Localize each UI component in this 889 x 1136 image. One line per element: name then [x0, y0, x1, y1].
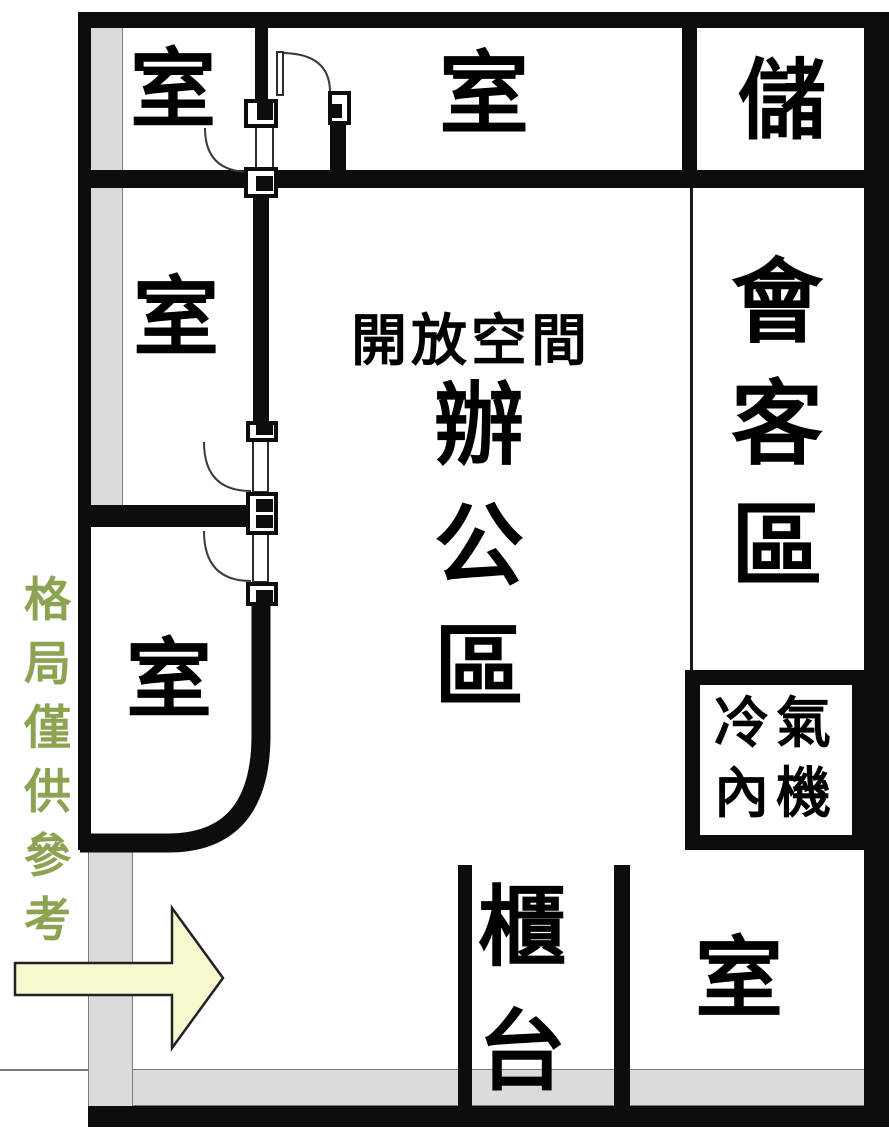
ac-unit-label: 冷氣 內機	[700, 688, 852, 828]
watermark-char: 考	[24, 897, 71, 944]
door-leaf-top	[276, 51, 284, 96]
watermark-char: 格	[24, 577, 71, 624]
open-office-subtitle: 辦 公 區	[434, 381, 524, 744]
watermark-char: 僅	[24, 705, 71, 752]
counter-label: 櫃 台	[478, 884, 566, 1132]
room-label-storage: 儲	[738, 57, 826, 145]
watermark-char: 供	[24, 769, 71, 816]
counter-label-char: 櫃	[478, 884, 566, 972]
open-office-subtitle-char: 區	[434, 623, 524, 713]
room-label-mid-left: 室	[133, 275, 219, 361]
reception-label-char: 客	[731, 379, 823, 471]
watermark-char: 局	[24, 641, 71, 688]
reception-label-char: 會	[731, 257, 823, 349]
open-office-subtitle-char: 辦	[434, 381, 524, 471]
reception-label: 會 客 區	[731, 257, 823, 623]
watermark-char: 參	[24, 833, 71, 880]
door-jamb	[246, 582, 278, 606]
ac-unit-label-line: 內機	[700, 758, 852, 828]
room-label-lower-left: 室	[126, 637, 212, 723]
door-jamb	[244, 167, 278, 198]
door-jamb	[246, 421, 278, 442]
door-jamb	[328, 91, 351, 125]
door-leaf-lower-left	[252, 530, 269, 583]
door-jamb	[246, 492, 278, 535]
room-label-top-left: 室	[130, 47, 216, 133]
door-leaf-upper-left	[255, 126, 274, 172]
watermark-disclaimer: 格 局 僅 供 參 考	[24, 577, 71, 961]
door-leaf-mid-left	[252, 440, 269, 493]
room-label-bottom-right: 室	[695, 935, 783, 1023]
room-label-top-middle: 室	[439, 50, 529, 140]
door-swing-arc-top	[281, 53, 330, 92]
open-office-title: 開放空間	[351, 314, 591, 370]
door-swing-arc-mid-left	[204, 442, 251, 491]
counter-label-char: 台	[478, 1008, 566, 1096]
door-swing-arc-lower-left	[204, 531, 251, 581]
door-jamb	[244, 99, 278, 128]
open-office-subtitle-char: 公	[434, 502, 524, 592]
reception-label-char: 區	[731, 501, 823, 593]
floor-plan: 室 室 儲 室 室 室 開放空間 辦 公 區 會 客 區 冷氣 內機 櫃 台 格…	[0, 0, 889, 1136]
ac-unit-label-line: 冷氣	[700, 688, 852, 758]
